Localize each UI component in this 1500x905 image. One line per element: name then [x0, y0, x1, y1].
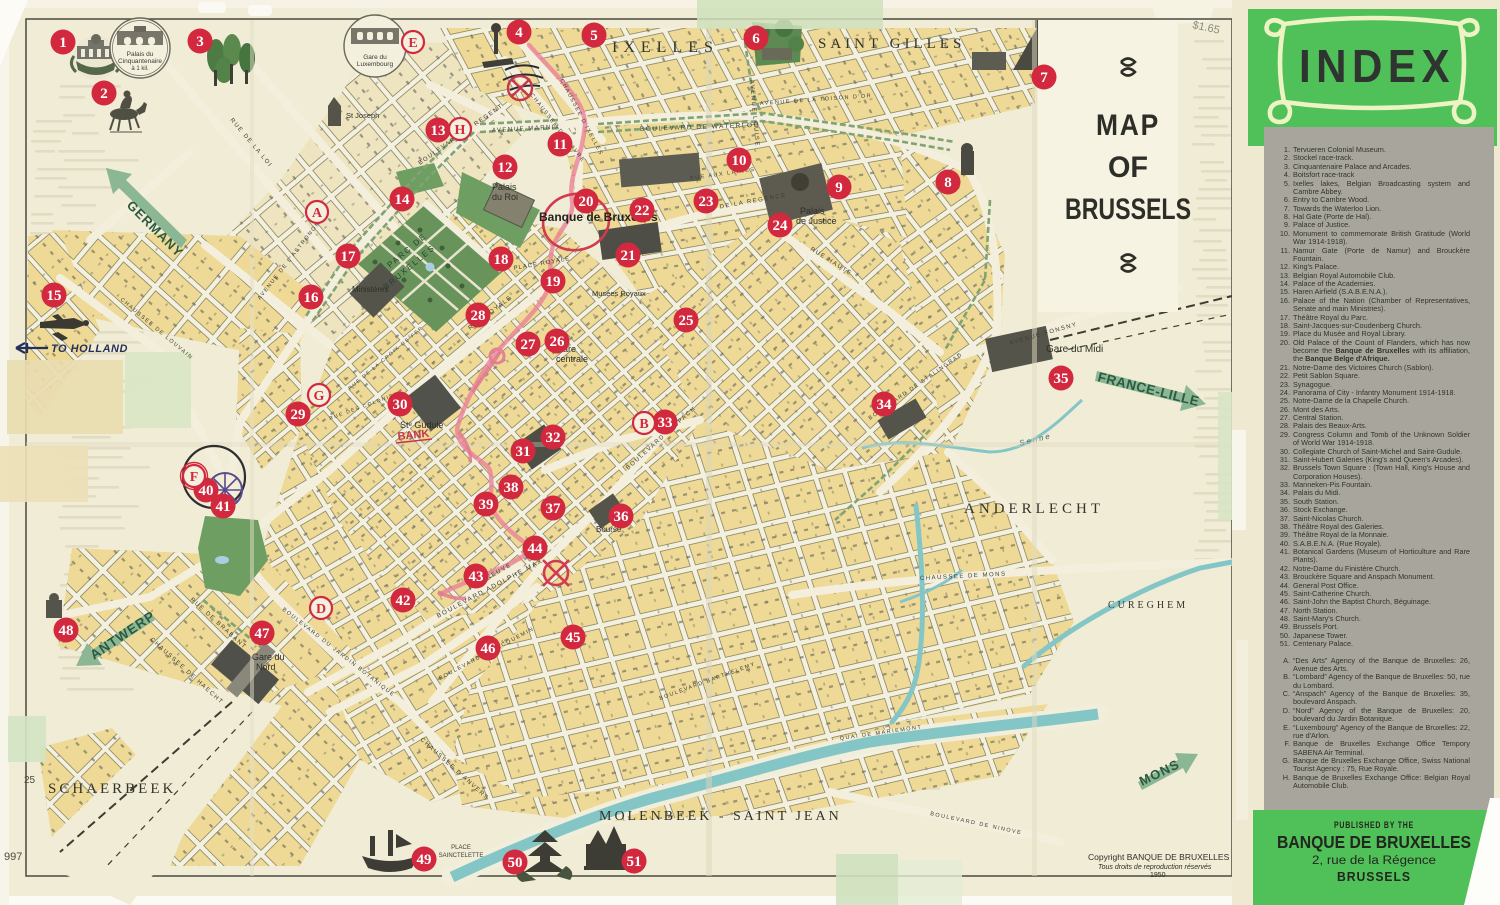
svg-text:51: 51 — [627, 854, 642, 870]
svg-text:Stᵉ Gudule: Stᵉ Gudule — [400, 420, 443, 430]
svg-text:D: D — [316, 602, 326, 617]
svg-text:45: 45 — [566, 630, 581, 646]
svg-text:centrale: centrale — [556, 354, 588, 364]
svg-text:Palais: Palais — [492, 182, 517, 192]
svg-text:Gare du: Gare du — [363, 54, 387, 61]
svg-text:29: 29 — [291, 407, 306, 423]
svg-text:SAINCTELETTE: SAINCTELETTE — [439, 853, 484, 859]
svg-text:39: 39 — [479, 497, 494, 513]
svg-text:Gare du Midi: Gare du Midi — [1046, 344, 1103, 355]
svg-text:PUBLISHED BY THE: PUBLISHED BY THE — [1334, 820, 1414, 830]
svg-text:Musées Royaux: Musées Royaux — [592, 289, 646, 298]
svg-text:25: 25 — [679, 313, 694, 329]
svg-text:Copyright BANQUE DE BRUXELLES: Copyright BANQUE DE BRUXELLES — [1088, 852, 1230, 862]
svg-text:à 1 kil.: à 1 kil. — [131, 66, 149, 72]
svg-text:9: 9 — [835, 180, 843, 196]
svg-text:31: 31 — [516, 444, 531, 460]
svg-text:28: 28 — [471, 308, 486, 324]
svg-text:SCHAERBEEK: SCHAERBEEK — [48, 781, 176, 797]
svg-text:32: 32 — [546, 430, 561, 446]
svg-text:St Joseph: St Joseph — [346, 111, 379, 120]
svg-text:30: 30 — [393, 397, 408, 413]
svg-text:12: 12 — [498, 160, 513, 176]
svg-text:35: 35 — [1054, 371, 1069, 387]
svg-text:7: 7 — [1040, 70, 1048, 86]
svg-text:48: 48 — [59, 623, 74, 639]
svg-text:H: H — [455, 123, 466, 138]
svg-text:MAP: MAP — [1096, 109, 1160, 142]
svg-text:BRUSSELS: BRUSSELS — [1337, 869, 1411, 884]
svg-text:14: 14 — [395, 192, 411, 208]
svg-text:44: 44 — [528, 541, 544, 557]
svg-text:27: 27 — [521, 337, 537, 353]
svg-text:37: 37 — [546, 501, 562, 517]
svg-text:G: G — [314, 389, 325, 404]
svg-text:8: 8 — [944, 175, 952, 191]
svg-text:20: 20 — [579, 194, 594, 210]
svg-text:Nord: Nord — [256, 662, 276, 672]
svg-text:25: 25 — [24, 775, 36, 786]
svg-text:Tous droits de reproduction ré: Tous droits de reproduction réservés — [1098, 864, 1212, 871]
svg-text:2: 2 — [100, 86, 108, 102]
svg-text:17: 17 — [341, 249, 357, 265]
svg-text:42: 42 — [396, 593, 411, 609]
svg-text:41: 41 — [216, 499, 231, 515]
svg-text:ANDERLECHT: ANDERLECHT — [964, 501, 1104, 517]
svg-text:3: 3 — [196, 34, 204, 50]
svg-text:11: 11 — [553, 137, 567, 153]
svg-text:OF: OF — [1108, 151, 1148, 184]
svg-text:du Roi: du Roi — [492, 192, 518, 202]
svg-text:47: 47 — [255, 626, 271, 642]
svg-text:CUREGHEM: CUREGHEM — [1108, 600, 1188, 611]
svg-text:15: 15 — [47, 288, 62, 304]
svg-text:BANQUE DE BRUXELLES: BANQUE DE BRUXELLES — [1277, 832, 1471, 852]
svg-text:INDEX: INDEX — [1299, 40, 1455, 92]
svg-text:SAINT GILLES: SAINT GILLES — [818, 36, 965, 52]
svg-text:TO HOLLAND: TO HOLLAND — [51, 343, 128, 355]
svg-text:5: 5 — [590, 28, 598, 44]
svg-text:26: 26 — [550, 334, 566, 350]
svg-text:de Justice: de Justice — [796, 216, 837, 226]
svg-text:1950: 1950 — [1150, 872, 1166, 879]
svg-text:34: 34 — [877, 397, 893, 413]
svg-text:F: F — [190, 470, 199, 485]
svg-text:50: 50 — [508, 855, 523, 871]
svg-text:Cinquantenaire: Cinquantenaire — [118, 58, 162, 65]
svg-text:PLACE: PLACE — [451, 845, 471, 851]
svg-text:36: 36 — [614, 509, 630, 525]
svg-text:10: 10 — [732, 153, 747, 169]
svg-text:1: 1 — [59, 35, 67, 51]
svg-text:43: 43 — [469, 569, 484, 585]
svg-text:Palais du: Palais du — [127, 51, 154, 58]
svg-text:E: E — [408, 36, 417, 51]
svg-text:16: 16 — [304, 290, 320, 306]
svg-text:Luxembourg: Luxembourg — [357, 61, 394, 68]
svg-text:38: 38 — [504, 480, 519, 496]
svg-text:997: 997 — [4, 851, 22, 863]
svg-text:6: 6 — [752, 31, 760, 47]
svg-text:19: 19 — [546, 274, 561, 290]
svg-text:Palais: Palais — [800, 206, 825, 216]
svg-text:23: 23 — [699, 194, 714, 210]
svg-text:BRUSSELS: BRUSSELS — [1065, 193, 1191, 226]
svg-text:IXELLES: IXELLES — [612, 39, 719, 56]
svg-text:18: 18 — [494, 252, 509, 268]
svg-text:21: 21 — [621, 248, 636, 264]
svg-text:4: 4 — [515, 25, 523, 41]
svg-text:A: A — [312, 206, 323, 221]
svg-text:24: 24 — [773, 218, 789, 234]
svg-text:22: 22 — [635, 203, 650, 219]
svg-text:49: 49 — [417, 852, 432, 868]
svg-text:13: 13 — [431, 123, 446, 139]
svg-text:MOLENBEEK - SAINT JEAN: MOLENBEEK - SAINT JEAN — [599, 809, 842, 824]
svg-text:46: 46 — [481, 641, 497, 657]
svg-text:33: 33 — [658, 415, 673, 431]
svg-text:2, rue de la Régence: 2, rue de la Régence — [1312, 855, 1436, 867]
svg-text:Gare du: Gare du — [252, 652, 285, 662]
svg-text:B: B — [639, 417, 648, 432]
